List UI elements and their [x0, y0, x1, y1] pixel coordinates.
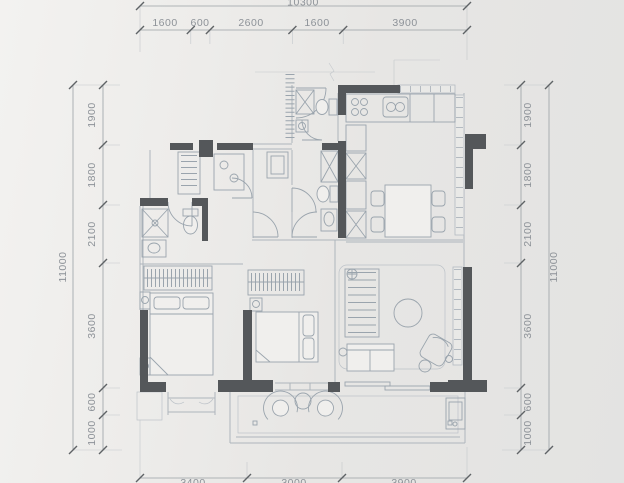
- master-sink: [142, 240, 166, 257]
- plant: [347, 269, 357, 279]
- dim-label-top-total: 10300: [287, 0, 319, 9]
- window-living-right: [453, 267, 462, 365]
- dim-label-right-2: 2100: [522, 221, 534, 246]
- dim-label-right-3: 3600: [522, 313, 534, 338]
- dim-label-bottom-0: 3400: [180, 477, 205, 483]
- dim-label-left-4: 600: [86, 392, 98, 411]
- living-room: [339, 265, 454, 372]
- bedroom2: [250, 298, 318, 362]
- dim-label-right-1: 1800: [522, 162, 534, 187]
- dimension-top: 10300 1600 600 2600 1600 3900: [136, 0, 471, 34]
- toilet-middle: [317, 186, 338, 202]
- floor-lamp: [446, 356, 453, 363]
- dim-label-right-4: 600: [522, 392, 534, 411]
- balcony-armchair-2: [307, 387, 346, 419]
- dim-label-left-total: 11000: [57, 252, 69, 283]
- dimension-right: 11000 1900 1800 2100 3600 600 1000: [517, 81, 560, 454]
- dim-label-left-5: 1000: [86, 420, 98, 445]
- dim-label-right-0: 1900: [522, 102, 534, 127]
- extension-lines: [73, 6, 549, 478]
- bed-bedroom2: [256, 312, 318, 362]
- wardrobes: [144, 266, 304, 295]
- master-bedroom: [140, 292, 213, 375]
- hallway: [253, 152, 317, 237]
- balcony-armchair-1: [260, 387, 299, 419]
- bed-master: [150, 293, 213, 375]
- nightstand-master-1: [140, 292, 150, 309]
- nightstand-bedroom2: [250, 298, 262, 311]
- dim-label-right-total: 11000: [548, 252, 560, 283]
- dim-label-left-0: 1900: [86, 102, 98, 127]
- master-bathroom: [142, 202, 198, 257]
- hall-door-swings: [253, 212, 317, 237]
- dim-label-bottom-2: 3900: [391, 477, 416, 483]
- kitchen-tall-units: [346, 125, 366, 238]
- wardrobe-master: [144, 266, 212, 290]
- toilet-top: [316, 99, 337, 115]
- study-dresser: [214, 154, 244, 190]
- balcony-ac-unit: [446, 398, 465, 429]
- kitchen-counter: [346, 94, 455, 122]
- kitchen-sink: [383, 97, 408, 117]
- kitchen: [346, 94, 455, 238]
- dim-label-top-4: 3900: [392, 17, 417, 29]
- dimension-bottom: 3400 3000 3900: [136, 474, 471, 483]
- dining-table: [371, 185, 445, 237]
- side-table: [419, 360, 431, 372]
- balcony: [230, 387, 465, 443]
- sliding-door-living-balcony: [345, 382, 430, 390]
- dim-label-top-2: 2600: [238, 17, 263, 29]
- dim-label-top-1: 600: [190, 17, 209, 29]
- bathroom-top: [296, 90, 337, 140]
- sink-middle: [321, 209, 337, 231]
- bathroom-middle: [292, 151, 338, 231]
- dim-label-right-5: 1000: [522, 420, 534, 445]
- kitchen-hob: [352, 99, 368, 116]
- dim-label-left-3: 3600: [86, 313, 98, 338]
- floor-plan-canvas: 10300 1600 600 2600 1600 3900 11000 1900…: [0, 0, 624, 483]
- floor-plan-page: 10300 1600 600 2600 1600 3900 11000 1900…: [0, 0, 624, 483]
- dim-label-left-2: 2100: [86, 221, 98, 246]
- dimension-left: 11000 1900 1800 2100 3600 600 1000: [57, 81, 107, 454]
- wardrobe-bedroom2: [248, 270, 304, 295]
- balcony-table: [295, 393, 311, 409]
- tv-shelf: [345, 269, 379, 337]
- dim-label-left-1: 1800: [86, 162, 98, 187]
- bath-middle-door: [292, 188, 316, 212]
- sofa: [339, 344, 394, 371]
- window-kitchen-right: [455, 95, 464, 235]
- master-toilet: [183, 209, 198, 234]
- window-kitchen-top: [398, 85, 455, 93]
- study-door: [232, 178, 252, 198]
- bath-top-door: [302, 120, 322, 140]
- coffee-table: [394, 299, 422, 327]
- study-room: [178, 152, 252, 198]
- dim-label-bottom-1: 3000: [281, 477, 306, 483]
- dim-label-top-0: 1600: [152, 17, 177, 29]
- dim-label-top-3: 1600: [304, 17, 329, 29]
- bay-window-master: [137, 392, 215, 420]
- window-bedroom2-balcony: [275, 383, 328, 390]
